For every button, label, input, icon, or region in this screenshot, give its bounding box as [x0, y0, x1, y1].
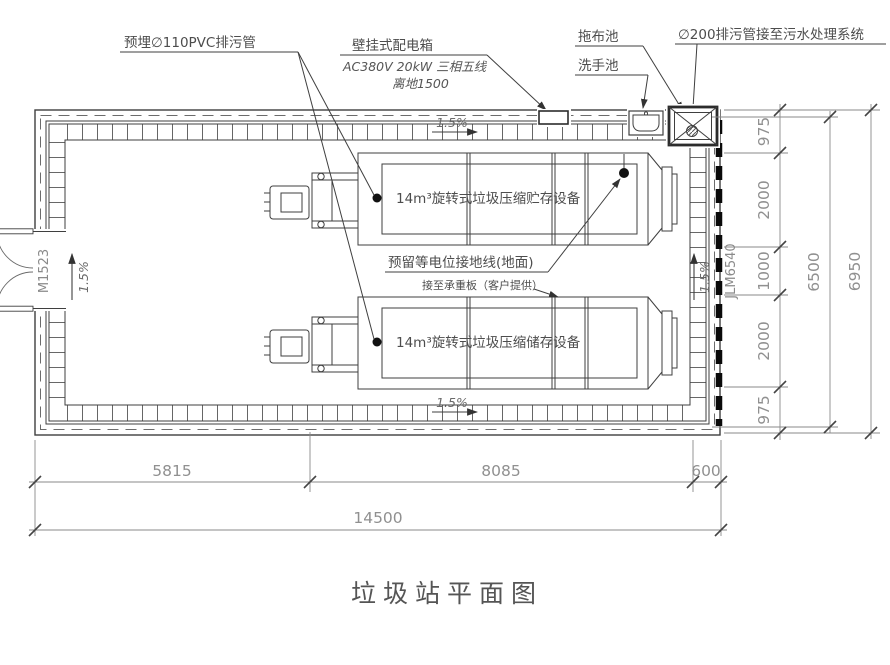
drain-pipe-label: ∅200排污管接至污水处理系统 [678, 26, 864, 43]
floor-plan-drawing: M1523 JLM6540 14m³旋转式垃圾压缩贮存设备 14m³旋转式垃圾压… [0, 0, 890, 665]
floor-drain-icon [687, 126, 698, 137]
drainage-channel [49, 124, 706, 421]
bearing-plate-label: 接至承重板（客户提供） [422, 278, 543, 292]
dim-value: 975 [755, 117, 773, 147]
leader-mop-pool [643, 46, 683, 111]
drawing-title: 垃圾站平面图 [351, 579, 543, 608]
dim-value: 5815 [152, 462, 191, 480]
door-mark-right: JLM6540 [724, 243, 739, 299]
dim-value: 6950 [846, 252, 864, 291]
leader-power-box [487, 55, 546, 110]
mop-pool-label: 拖布池 [578, 29, 619, 45]
inner-wall-face [46, 121, 709, 424]
drain-point-upper [373, 194, 382, 203]
distribution-box [537, 109, 571, 127]
wash-sink-label: 洗手池 [578, 58, 619, 74]
slope-arrows [72, 132, 694, 412]
drawing-sheet: M1523 JLM6540 14m³旋转式垃圾压缩贮存设备 14m³旋转式垃圾压… [0, 0, 890, 665]
mop-pool [666, 104, 720, 148]
dim-value: 8085 [481, 462, 520, 480]
roof-dashed-line [41, 116, 715, 430]
outer-wall [35, 110, 720, 435]
equipment-upper-label: 14m³旋转式垃圾压缩贮存设备 [396, 190, 581, 207]
ground-wire-label: 预留等电位接地线(地面) [388, 254, 534, 271]
dim-value: 14500 [353, 509, 402, 527]
slope-label-left: 1.5% [76, 261, 91, 293]
power-box-spec: AC380V 20kW 三相五线 [342, 59, 488, 74]
dim-right-values: 975 2000 1000 2000 975 6500 6950 [755, 117, 864, 425]
drain-point-lower [373, 338, 382, 347]
dim-value: 600 [691, 462, 721, 480]
dim-value: 2000 [755, 321, 773, 360]
dim-value: 1000 [755, 251, 773, 290]
ground-point [619, 168, 629, 178]
slope-label-bottom: 1.5% [436, 395, 468, 410]
power-box-label: 壁挂式配电箱 [352, 38, 433, 54]
buried-pipe-label: 预埋∅110PVC排污管 [124, 35, 256, 51]
door-opening-left [0, 229, 69, 311]
leader-wash-sink [643, 75, 648, 108]
power-box-height: 离地1500 [392, 76, 449, 91]
slope-label-right: 1.5% [697, 261, 712, 293]
building-outline [35, 110, 720, 435]
equipment-lower-label: 14m³旋转式垃圾压缩储存设备 [396, 334, 581, 351]
dim-value: 2000 [755, 180, 773, 219]
dim-value: 975 [755, 395, 773, 425]
dim-value: 6500 [805, 252, 823, 291]
dim-bottom-ticks [29, 476, 727, 536]
wash-basin [627, 109, 665, 137]
slope-label-top: 1.5% [436, 115, 468, 130]
dim-bottom-values: 5815 8085 600 14500 [152, 462, 721, 527]
door-mark-left: M1523 [37, 249, 52, 293]
